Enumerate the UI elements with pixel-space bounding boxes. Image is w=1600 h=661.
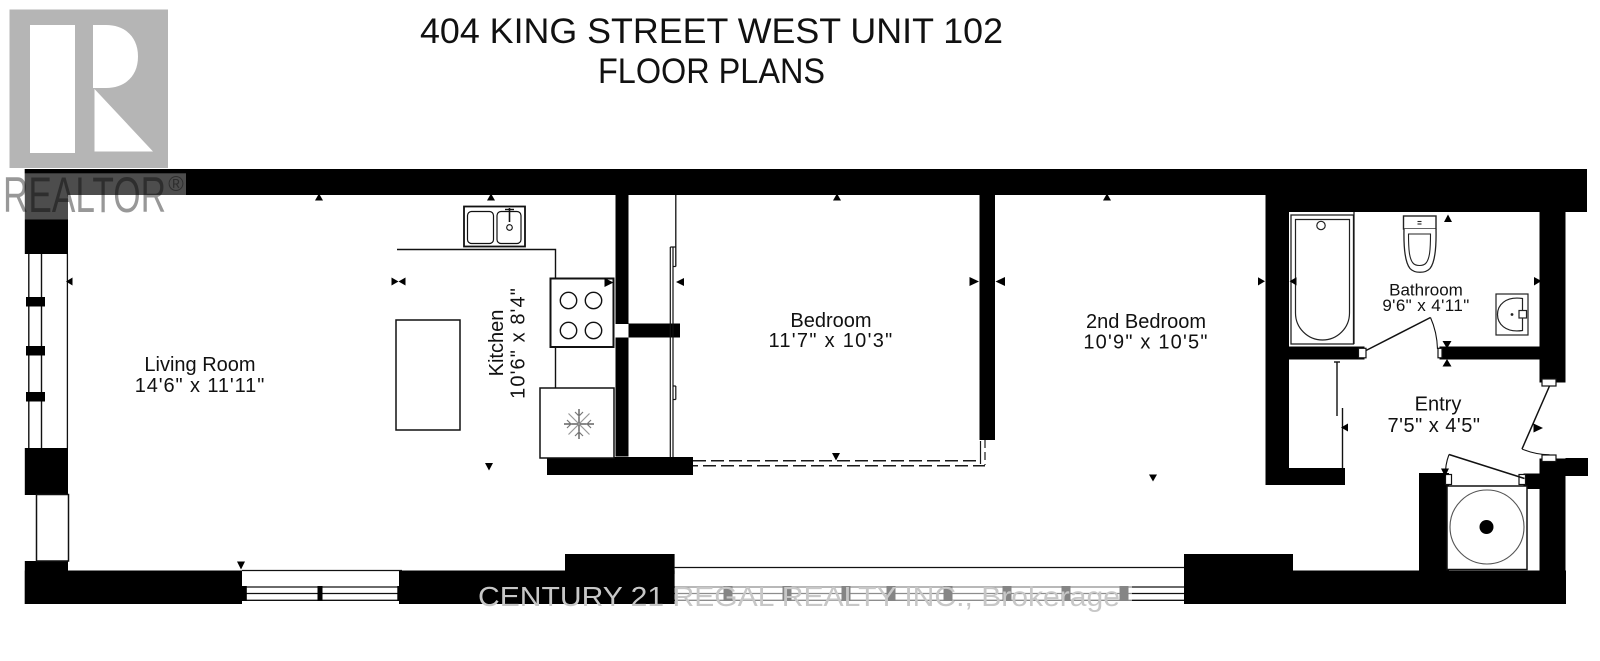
svg-text:11'7" x 10'3": 11'7" x 10'3": [768, 330, 893, 352]
svg-text:10'9" x 10'5": 10'9" x 10'5": [1083, 332, 1208, 354]
svg-text:404 KING STREET WEST UNIT 102: 404 KING STREET WEST UNIT 102: [420, 12, 1003, 51]
svg-text:CENTURY 21 REGAL REALTY INC.,: CENTURY 21 REGAL REALTY INC., Brokerage: [478, 581, 1120, 612]
svg-text:Kitchen: Kitchen: [486, 310, 508, 377]
svg-text:FLOOR PLANS: FLOOR PLANS: [598, 52, 825, 91]
svg-text:®: ®: [168, 173, 184, 196]
svg-text:10'6" x 8'4": 10'6" x 8'4": [508, 287, 530, 399]
svg-text:Living Room: Living Room: [144, 354, 255, 376]
svg-text:14'6" x 11'11": 14'6" x 11'11": [135, 375, 265, 397]
svg-text:REALTOR: REALTOR: [3, 167, 166, 223]
svg-text:Bedroom: Bedroom: [790, 310, 871, 332]
svg-text:9'6" x 4'11": 9'6" x 4'11": [1382, 296, 1469, 315]
svg-text:2nd Bedroom: 2nd Bedroom: [1086, 311, 1206, 333]
svg-text:7'5" x 4'5": 7'5" x 4'5": [1388, 415, 1481, 437]
svg-text:Entry: Entry: [1415, 394, 1462, 416]
